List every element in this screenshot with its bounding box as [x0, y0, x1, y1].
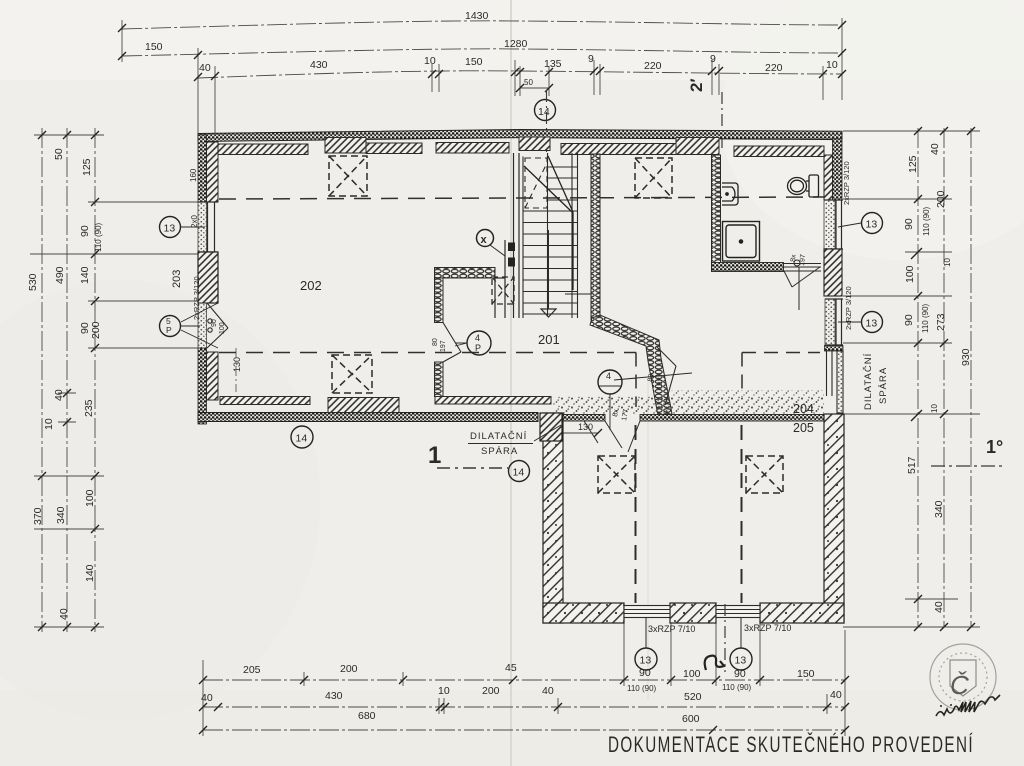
svg-text:3xRZP 7/10: 3xRZP 7/10 — [744, 623, 791, 633]
svg-text:200: 200 — [935, 190, 947, 208]
svg-text:110 (90): 110 (90) — [627, 684, 657, 693]
svg-text:40: 40 — [830, 689, 842, 701]
svg-text:P: P — [166, 325, 172, 335]
svg-text:205: 205 — [243, 664, 261, 676]
svg-text:140: 140 — [84, 564, 96, 582]
svg-text:110 (90): 110 (90) — [94, 222, 103, 252]
svg-text:45: 45 — [505, 662, 517, 674]
svg-text:110 (90): 110 (90) — [722, 683, 752, 692]
svg-text:40: 40 — [929, 143, 941, 155]
svg-text:150: 150 — [145, 41, 163, 53]
svg-text:P: P — [475, 343, 481, 353]
svg-text:517: 517 — [906, 456, 918, 474]
svg-text:10: 10 — [43, 418, 55, 430]
svg-text:40: 40 — [53, 389, 65, 401]
svg-text:150: 150 — [465, 56, 483, 68]
svg-text:DOKUMENTACE SKUTEČNÉHO PROVEDE: DOKUMENTACE SKUTEČNÉHO PROVEDENÍ — [608, 732, 974, 757]
svg-text:SPÁRA: SPÁRA — [481, 446, 518, 457]
svg-text:370: 370 — [32, 507, 44, 525]
svg-text:135: 135 — [544, 58, 562, 70]
svg-text:197: 197 — [799, 254, 807, 266]
svg-text:13: 13 — [735, 655, 747, 667]
svg-text:2xRZP 3/120: 2xRZP 3/120 — [192, 276, 201, 320]
svg-text:220: 220 — [644, 60, 662, 72]
svg-text:Č: Č — [950, 670, 969, 700]
svg-text:10: 10 — [826, 59, 838, 71]
svg-text:100: 100 — [219, 322, 226, 334]
svg-text:2xRZP 3/120: 2xRZP 3/120 — [844, 286, 853, 330]
svg-text:100: 100 — [84, 489, 96, 507]
svg-text:200: 200 — [340, 663, 358, 675]
svg-text:203: 203 — [171, 270, 183, 288]
svg-text:680: 680 — [358, 710, 376, 722]
svg-text:2′: 2′ — [687, 78, 706, 92]
svg-text:125: 125 — [907, 155, 919, 173]
svg-text:235: 235 — [83, 399, 95, 417]
svg-text:201: 201 — [538, 332, 560, 347]
svg-text:9: 9 — [588, 53, 594, 65]
svg-text:50: 50 — [524, 78, 533, 87]
svg-text:90: 90 — [211, 319, 218, 327]
svg-text:1°: 1° — [986, 437, 1003, 457]
svg-text:DILATAČNÍ: DILATAČNÍ — [470, 431, 527, 442]
svg-text:80: 80 — [647, 373, 655, 382]
svg-text:130: 130 — [232, 357, 242, 372]
svg-text:14: 14 — [538, 106, 550, 118]
svg-text:13: 13 — [866, 318, 878, 330]
svg-text:10: 10 — [424, 55, 436, 67]
svg-text:14: 14 — [296, 433, 308, 445]
svg-text:140: 140 — [79, 266, 91, 284]
svg-text:273: 273 — [935, 313, 947, 331]
svg-text:1: 1 — [428, 442, 441, 469]
svg-text:125: 125 — [81, 158, 93, 176]
svg-text:10: 10 — [930, 404, 939, 413]
svg-text:110 (90): 110 (90) — [922, 206, 931, 236]
svg-text:160: 160 — [189, 168, 198, 182]
svg-text:40: 40 — [542, 685, 554, 697]
svg-text:100: 100 — [683, 668, 701, 680]
svg-text:2x0: 2x0 — [190, 215, 199, 228]
svg-text:10: 10 — [438, 685, 450, 697]
svg-text:40: 40 — [199, 62, 211, 74]
svg-text:430: 430 — [325, 690, 343, 702]
svg-text:9: 9 — [710, 53, 716, 65]
svg-text:40: 40 — [933, 601, 945, 613]
svg-text:600: 600 — [682, 713, 700, 725]
svg-text:930: 930 — [960, 348, 972, 366]
svg-text:x: x — [481, 234, 488, 246]
svg-text:13: 13 — [640, 655, 652, 667]
svg-text:DILATAČNÍ: DILATAČNÍ — [863, 353, 874, 410]
svg-text:2xRZP 3/120: 2xRZP 3/120 — [842, 161, 851, 205]
svg-text:520: 520 — [684, 691, 702, 703]
svg-text:530: 530 — [27, 273, 39, 291]
svg-text:4: 4 — [475, 333, 480, 343]
svg-text:40: 40 — [201, 692, 213, 704]
svg-text:100: 100 — [904, 265, 916, 283]
svg-text:220: 220 — [765, 62, 783, 74]
svg-text:205: 205 — [793, 421, 814, 435]
svg-text:430: 430 — [310, 59, 328, 71]
svg-text:490: 490 — [54, 266, 66, 284]
svg-text:150: 150 — [797, 668, 815, 680]
svg-text:4: 4 — [606, 371, 611, 381]
svg-text:130: 130 — [578, 422, 593, 432]
svg-text:340: 340 — [933, 500, 945, 518]
svg-text:204: 204 — [793, 402, 814, 416]
svg-text:197: 197 — [440, 340, 447, 352]
svg-text:13: 13 — [866, 219, 878, 231]
svg-text:50: 50 — [53, 148, 65, 160]
svg-text:8x: 8x — [790, 254, 798, 262]
svg-text:90: 90 — [903, 314, 915, 326]
svg-text:200: 200 — [482, 685, 500, 697]
svg-text:13: 13 — [164, 223, 176, 235]
svg-text:80: 80 — [432, 338, 439, 346]
svg-text:90: 90 — [903, 218, 915, 230]
svg-text:SPÁRA: SPÁRA — [878, 367, 889, 404]
svg-text:200: 200 — [90, 321, 102, 339]
svg-text:1280: 1280 — [504, 38, 528, 50]
svg-text:110 (90): 110 (90) — [921, 303, 930, 333]
svg-text:3xRZP 7/10: 3xRZP 7/10 — [648, 624, 695, 634]
svg-text:202: 202 — [300, 278, 322, 293]
svg-text:40: 40 — [58, 608, 70, 620]
svg-text:90: 90 — [79, 225, 91, 237]
svg-text:14: 14 — [513, 467, 525, 479]
svg-text:1430: 1430 — [465, 10, 489, 22]
svg-text:340: 340 — [55, 506, 67, 524]
svg-text:10: 10 — [943, 258, 952, 267]
